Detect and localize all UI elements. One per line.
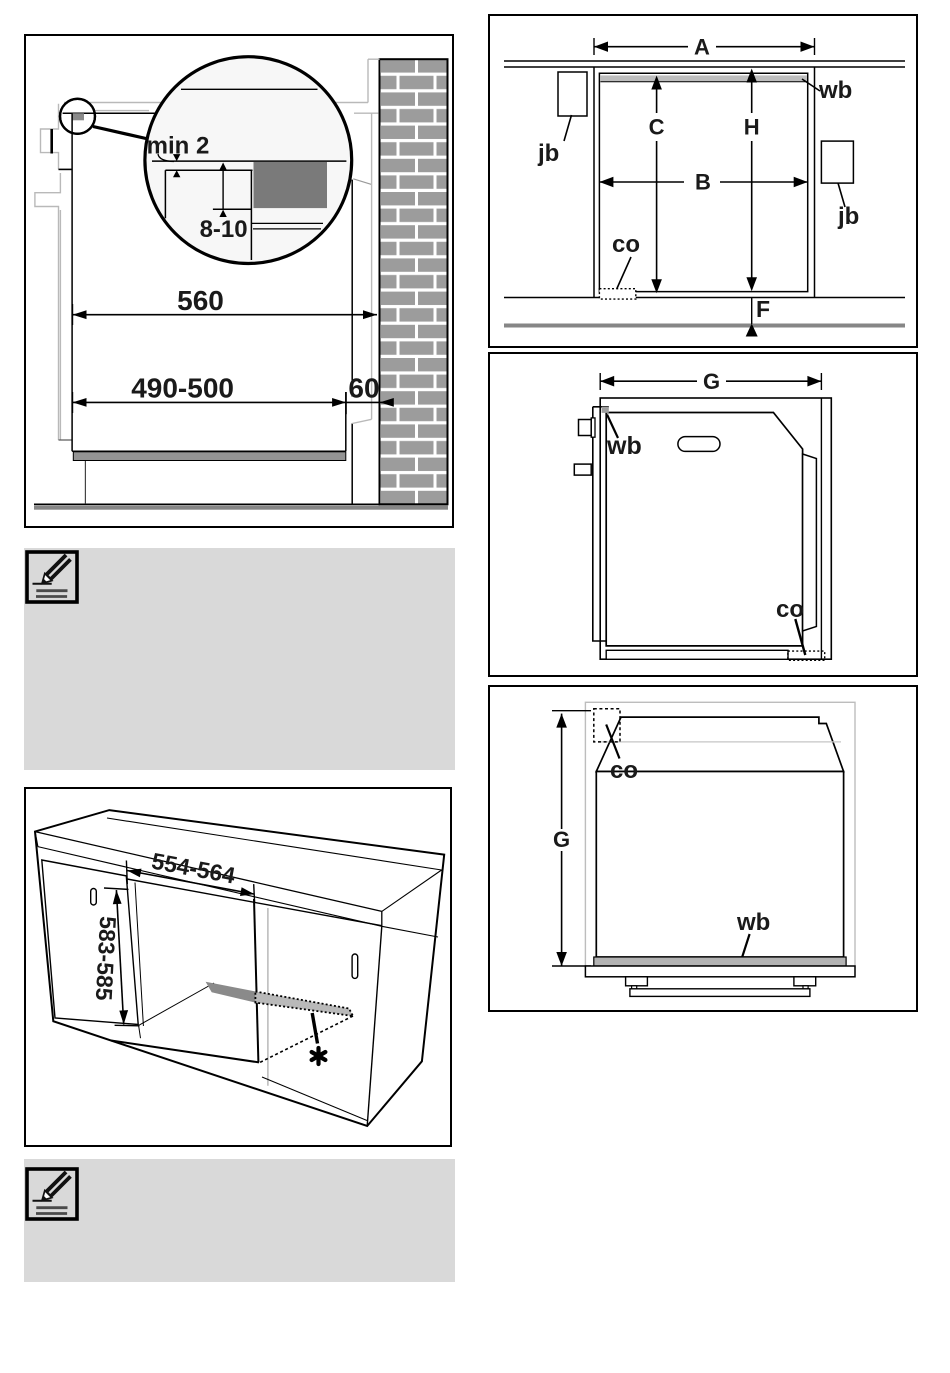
svg-text:C: C — [649, 115, 665, 140]
svg-text:wb: wb — [606, 432, 642, 460]
svg-text:G: G — [553, 827, 570, 852]
svg-text:jb: jb — [537, 140, 559, 167]
svg-text:490-500: 490-500 — [131, 373, 234, 404]
svg-text:F: F — [756, 296, 770, 322]
svg-text:583-585: 583-585 — [91, 916, 121, 1002]
svg-text:560: 560 — [177, 285, 224, 316]
svg-text:A: A — [694, 35, 710, 60]
svg-text:wb: wb — [736, 909, 770, 936]
svg-text:jb: jb — [837, 203, 859, 230]
svg-text:H: H — [744, 115, 760, 140]
svg-text:co: co — [610, 757, 638, 784]
svg-text:B: B — [695, 170, 711, 195]
svg-text:co: co — [612, 231, 640, 258]
svg-text:60: 60 — [348, 373, 379, 404]
svg-text:wb: wb — [818, 77, 852, 104]
svg-text:8-10: 8-10 — [200, 216, 248, 243]
svg-text:co: co — [776, 596, 804, 623]
svg-text:G: G — [703, 369, 720, 394]
